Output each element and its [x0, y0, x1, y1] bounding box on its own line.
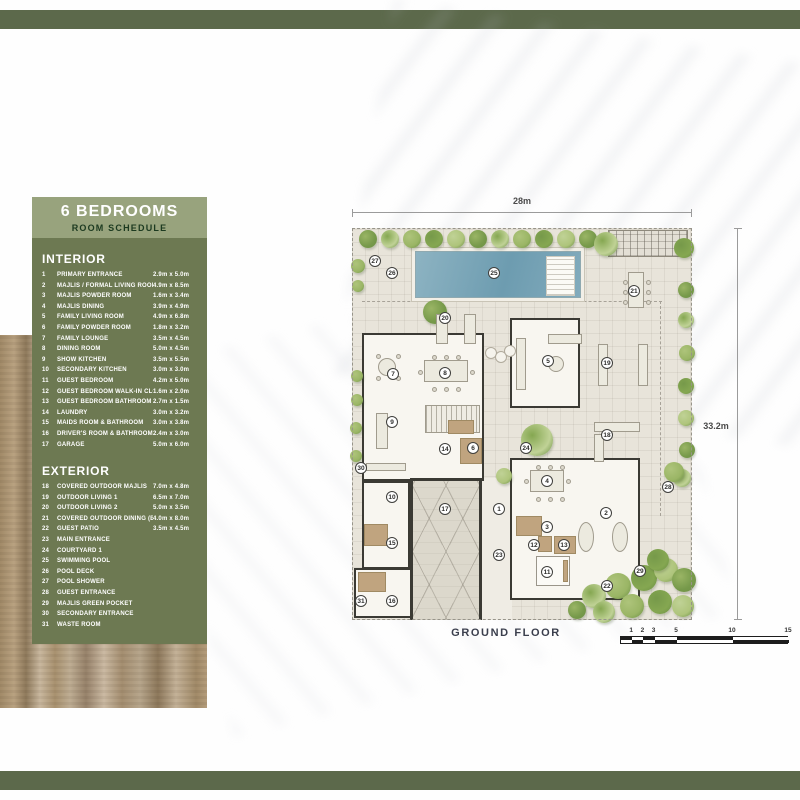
furniture: [366, 463, 406, 471]
room-label: OUTDOOR LIVING 1: [57, 493, 153, 504]
chair-dot: [376, 376, 381, 381]
room-label: GUEST BEDROOM WALK-IN CLOSET: [57, 387, 153, 398]
schedule-row: 3MAJLIS POWDER ROOM1.6m x 3.4m: [40, 291, 199, 302]
furniture: [578, 522, 594, 552]
schedule-row: 12GUEST BEDROOM WALK-IN CLOSET1.6m x 2.0…: [40, 387, 199, 398]
furniture: [563, 560, 568, 582]
room-marker-28: 28: [662, 481, 674, 493]
schedule-row: 21COVERED OUTDOOR DINING (BBQ)4.0m x 8.0…: [40, 514, 199, 525]
tree: [568, 601, 586, 619]
tree: [648, 590, 672, 614]
schedule-row: 27POOL SHOWER: [40, 577, 199, 588]
chair-dot: [396, 354, 401, 359]
room-number: 29: [40, 599, 57, 610]
room-number: 31: [40, 620, 57, 631]
tree: [620, 594, 644, 618]
furniture: [358, 572, 386, 592]
room-marker-24: 24: [520, 442, 532, 454]
furniture: [594, 422, 640, 432]
room-marker-8: 8: [439, 367, 451, 379]
room-dimensions: 4.2m x 5.0m: [153, 376, 199, 387]
room-number: 16: [40, 429, 57, 440]
schedule-row: 8DINING ROOM5.0m x 4.5m: [40, 344, 199, 355]
bottom-accent-bar: [0, 771, 800, 790]
room-number: 9: [40, 355, 57, 366]
tree: [513, 230, 531, 248]
room-dimensions: 3.5m x 4.5m: [153, 334, 199, 345]
schedule-row: 26POOL DECK: [40, 567, 199, 578]
room-marker-3: 3: [541, 521, 553, 533]
room-marker-22: 22: [601, 580, 613, 592]
furniture: [516, 516, 542, 536]
room-number: 11: [40, 376, 57, 387]
scale-tick: 2: [641, 627, 645, 634]
chair-dot: [623, 280, 628, 285]
room-label: MAJLIS DINING: [57, 302, 153, 313]
room-label: PRIMARY ENTRANCE: [57, 270, 153, 281]
brochure-page: { "sidebar": { "title": "6 BEDROOMS", "s…: [0, 0, 800, 800]
tree: [535, 230, 553, 248]
room-label: SWIMMING POOL: [57, 556, 153, 567]
top-accent-bar: [0, 10, 800, 29]
room-label: COURTYARD 1: [57, 546, 153, 557]
tree: [350, 450, 362, 462]
scale-tick-labels: 12351015: [620, 627, 788, 636]
room-label: WASTE ROOM: [57, 620, 153, 631]
room-marker-30: 30: [355, 462, 367, 474]
tree: [425, 230, 443, 248]
schedule-row: 31WASTE ROOM: [40, 620, 199, 631]
room-label: DINING ROOM: [57, 344, 153, 355]
tree: [672, 595, 694, 617]
chair-dot: [444, 387, 449, 392]
tree: [359, 230, 377, 248]
schedule-row: 25SWIMMING POOL: [40, 556, 199, 567]
room-dimensions: 6.5m x 7.0m: [153, 493, 199, 504]
room-dimensions: 3.5m x 5.5m: [153, 355, 199, 366]
schedule-row: 7FAMILY LOUNGE3.5m x 4.5m: [40, 334, 199, 345]
room-marker-4: 4: [541, 475, 553, 487]
room-marker-20: 20: [439, 312, 451, 324]
scale-segment: [655, 640, 677, 643]
furniture: [448, 420, 474, 434]
room-marker-6: 6: [467, 442, 479, 454]
room-label: FAMILY POWDER ROOM: [57, 323, 153, 334]
room-label: SHOW KITCHEN: [57, 355, 153, 366]
chair-dot: [646, 300, 651, 305]
room-label: GUEST BEDROOM BATHROOM: [57, 397, 153, 408]
tree: [491, 230, 509, 248]
tree: [674, 238, 694, 258]
ground-floor-plan: 1234567891011121314151617181920212223242…: [352, 228, 692, 620]
tree: [647, 549, 669, 571]
scale-segment: [677, 640, 733, 643]
tree: [351, 259, 365, 273]
room-number: 25: [40, 556, 57, 567]
room-marker-13: 13: [558, 539, 570, 551]
room-marker-16: 16: [386, 595, 398, 607]
chair-dot: [524, 479, 529, 484]
roof-line: [362, 301, 662, 302]
schedule-row: 14LAUNDRY3.0m x 3.2m: [40, 408, 199, 419]
scale-tick: 10: [728, 627, 735, 634]
room-number: 26: [40, 567, 57, 578]
chair-dot: [536, 465, 541, 470]
room-marker-23: 23: [493, 549, 505, 561]
room-label: LAUNDRY: [57, 408, 153, 419]
schedule-row: 18COVERED OUTDOOR MAJLIS7.0m x 4.8m: [40, 482, 199, 493]
chair-dot: [376, 354, 381, 359]
schedule-row: 22GUEST PATIO3.5m x 4.5m: [40, 524, 199, 535]
chair-dot: [646, 280, 651, 285]
tree: [593, 601, 615, 623]
room-number: 4: [40, 302, 57, 313]
room-number: 20: [40, 503, 57, 514]
schedule-row: 1PRIMARY ENTRANCE2.9m x 5.0m: [40, 270, 199, 281]
room-dimensions: 4.0m x 8.0m: [153, 514, 199, 525]
room-label: OUTDOOR LIVING 2: [57, 503, 153, 514]
room-dimensions: 5.0m x 3.5m: [153, 503, 199, 514]
furniture: [516, 338, 526, 390]
room-label: COVERED OUTDOOR MAJLIS: [57, 482, 153, 493]
room-marker-14: 14: [439, 443, 451, 455]
schedule-row: 5FAMILY LIVING ROOM4.9m x 6.8m: [40, 312, 199, 323]
chair-dot: [548, 465, 553, 470]
chair-dot: [536, 497, 541, 502]
plan-height-dimension: 33.2m: [697, 421, 735, 431]
chair-dot: [560, 497, 565, 502]
furniture: [638, 344, 648, 386]
schedule-row: 4MAJLIS DINING3.9m x 4.9m: [40, 302, 199, 313]
furniture: [464, 314, 476, 344]
schedule-row: 23MAIN ENTRANCE: [40, 535, 199, 546]
planter: [504, 345, 516, 357]
room-schedule-panel: 6 BEDROOMS ROOM SCHEDULE INTERIOR1PRIMAR…: [32, 197, 207, 644]
tree: [678, 378, 694, 394]
tree: [594, 232, 618, 256]
schedule-row: 17GARAGE5.0m x 6.0m: [40, 440, 199, 451]
width-dimension-line: [352, 212, 692, 213]
scale-tick: 1: [629, 627, 633, 634]
section-heading: INTERIOR: [42, 252, 199, 266]
room-label: GARAGE: [57, 440, 153, 451]
page-title: 6 BEDROOMS: [32, 203, 207, 221]
schedule-row: 20OUTDOOR LIVING 25.0m x 3.5m: [40, 503, 199, 514]
tree: [351, 370, 363, 382]
tree: [381, 230, 399, 248]
room-marker-7: 7: [387, 368, 399, 380]
room-label: FAMILY LOUNGE: [57, 334, 153, 345]
room-number: 27: [40, 577, 57, 588]
scale-segment: [733, 640, 789, 643]
schedule-row: 10SECONDARY KITCHEN3.0m x 3.0m: [40, 365, 199, 376]
floor-title: GROUND FLOOR: [420, 627, 592, 639]
room-number: 23: [40, 535, 57, 546]
tree: [678, 312, 694, 328]
room-label: GUEST PATIO: [57, 524, 153, 535]
room-dimensions: 3.0m x 3.8m: [153, 418, 199, 429]
room-number: 18: [40, 482, 57, 493]
room-marker-29: 29: [634, 565, 646, 577]
chair-dot: [432, 355, 437, 360]
room-number: 6: [40, 323, 57, 334]
room-label: MAJLIS POWDER ROOM: [57, 291, 153, 302]
room-number: 7: [40, 334, 57, 345]
room-dimensions: 3.5m x 4.5m: [153, 524, 199, 535]
room-number: 30: [40, 609, 57, 620]
schedule-row: 30SECONDARY ENTRANCE: [40, 609, 199, 620]
room-marker-11: 11: [541, 566, 553, 578]
chair-dot: [548, 497, 553, 502]
room-label: POOL DECK: [57, 567, 153, 578]
room-number: 3: [40, 291, 57, 302]
room-marker-17: 17: [439, 503, 451, 515]
schedule-row: 13GUEST BEDROOM BATHROOM2.7m x 1.5m: [40, 397, 199, 408]
tree: [557, 230, 575, 248]
scale-segment: [632, 640, 643, 643]
room-label: MAIN ENTRANCE: [57, 535, 153, 546]
tree: [496, 468, 512, 484]
room-dimensions: 2.9m x 5.0m: [153, 270, 199, 281]
schedule-row: 29MAJLIS GREEN POCKET: [40, 599, 199, 610]
room-label: MAJLIS GREEN POCKET: [57, 599, 153, 610]
room-label: POOL SHOWER: [57, 577, 153, 588]
tree: [664, 462, 684, 482]
room-number: 17: [40, 440, 57, 451]
room-marker-2: 2: [600, 507, 612, 519]
room-number: 21: [40, 514, 57, 525]
room-number: 10: [40, 365, 57, 376]
tree: [678, 410, 694, 426]
tree: [672, 568, 696, 592]
schedule-row: 11GUEST BEDROOM4.2m x 5.0m: [40, 376, 199, 387]
schedule-row: 2MAJLIS / FORMAL LIVING ROOM4.9m x 8.5m: [40, 281, 199, 292]
room-marker-10: 10: [386, 491, 398, 503]
room-number: 24: [40, 546, 57, 557]
room-marker-18: 18: [601, 429, 613, 441]
room-marker-26: 26: [386, 267, 398, 279]
chair-dot: [646, 290, 651, 295]
tree: [403, 230, 421, 248]
tree: [679, 442, 695, 458]
room-marker-25: 25: [488, 267, 500, 279]
schedule-row: 15MAIDS ROOM & BATHROOM3.0m x 3.8m: [40, 418, 199, 429]
room-marker-21: 21: [628, 285, 640, 297]
room-marker-12: 12: [528, 539, 540, 551]
room-number: 13: [40, 397, 57, 408]
tree: [350, 422, 362, 434]
room-dimensions: 3.9m x 4.9m: [153, 302, 199, 313]
room-dimensions: 1.6m x 3.4m: [153, 291, 199, 302]
scale-segment: [621, 640, 632, 643]
room-marker-9: 9: [386, 416, 398, 428]
scale-tick: 15: [784, 627, 791, 634]
roof-line: [660, 301, 661, 516]
room-dimensions: 3.0m x 3.0m: [153, 365, 199, 376]
scale-strip: [620, 636, 788, 644]
room-label: MAJLIS / FORMAL LIVING ROOM: [57, 281, 153, 292]
room-dimensions: 1.8m x 3.2m: [153, 323, 199, 334]
schedule-row: 6FAMILY POWDER ROOM1.8m x 3.2m: [40, 323, 199, 334]
room-number: 19: [40, 493, 57, 504]
room-label: COVERED OUTDOOR DINING (BBQ): [57, 514, 153, 525]
room-dimensions: 5.0m x 4.5m: [153, 344, 199, 355]
room-dimensions: 5.0m x 6.0m: [153, 440, 199, 451]
room-number: 1: [40, 270, 57, 281]
chair-dot: [623, 300, 628, 305]
furniture: [364, 524, 388, 546]
schedule-list: INTERIOR1PRIMARY ENTRANCE2.9m x 5.0m2MAJ…: [32, 238, 207, 644]
room-dimensions: 2.7m x 1.5m: [153, 397, 199, 408]
schedule-row: 28GUEST ENTRANCE: [40, 588, 199, 599]
chair-dot: [444, 355, 449, 360]
room-number: 12: [40, 387, 57, 398]
chair-dot: [432, 387, 437, 392]
tree: [447, 230, 465, 248]
chair-dot: [560, 465, 565, 470]
tree: [352, 280, 364, 292]
furniture: [538, 536, 552, 552]
room-dimensions: 4.9m x 8.5m: [153, 281, 199, 292]
room-number: 5: [40, 312, 57, 323]
room-dimensions: 3.0m x 3.2m: [153, 408, 199, 419]
room-dimensions: 1.6m x 2.0m: [153, 387, 199, 398]
room-number: 15: [40, 418, 57, 429]
schedule-row: 19OUTDOOR LIVING 16.5m x 7.0m: [40, 493, 199, 504]
room-marker-15: 15: [386, 537, 398, 549]
room-number: 22: [40, 524, 57, 535]
scale-bar: 12351015: [620, 627, 788, 644]
pool-loungers: [546, 256, 575, 296]
room-dimensions: 7.0m x 4.8m: [153, 482, 199, 493]
tree: [678, 282, 694, 298]
room-marker-5: 5: [542, 355, 554, 367]
room-label: GUEST BEDROOM: [57, 376, 153, 387]
room-marker-19: 19: [601, 357, 613, 369]
room-label: MAIDS ROOM & BATHROOM: [57, 418, 153, 429]
schedule-row: 24COURTYARD 1: [40, 546, 199, 557]
plan-width-dimension: 28m: [352, 196, 692, 206]
furniture: [548, 334, 582, 344]
room-label: SECONDARY KITCHEN: [57, 365, 153, 376]
tree: [679, 345, 695, 361]
room-number: 8: [40, 344, 57, 355]
room-marker-27: 27: [369, 255, 381, 267]
height-dimension-line: [737, 228, 738, 620]
furniture: [612, 522, 628, 552]
room-number: 14: [40, 408, 57, 419]
schedule-row: 9SHOW KITCHEN3.5m x 5.5m: [40, 355, 199, 366]
room-marker-31: 31: [355, 595, 367, 607]
room-label: FAMILY LIVING ROOM: [57, 312, 153, 323]
section-heading: EXTERIOR: [42, 464, 199, 478]
chair-dot: [566, 479, 571, 484]
chair-dot: [418, 370, 423, 375]
room-marker-1: 1: [493, 503, 505, 515]
room-label: GUEST ENTRANCE: [57, 588, 153, 599]
room-label: DRIVER'S ROOM & BATHROOM: [57, 429, 153, 440]
room-dimensions: 4.9m x 6.8m: [153, 312, 199, 323]
chair-dot: [456, 355, 461, 360]
schedule-header: 6 BEDROOMS ROOM SCHEDULE: [32, 197, 207, 238]
garage-driveway: [410, 478, 482, 620]
room-number: 28: [40, 588, 57, 599]
scale-tick: 5: [674, 627, 678, 634]
chair-dot: [470, 370, 475, 375]
scale-segment: [643, 640, 654, 643]
schedule-subtitle: ROOM SCHEDULE: [32, 223, 207, 233]
scale-tick: 3: [652, 627, 656, 634]
room-dimensions: 2.4m x 3.0m: [153, 429, 199, 440]
room-number: 2: [40, 281, 57, 292]
tree: [351, 394, 363, 406]
room-label: SECONDARY ENTRANCE: [57, 609, 153, 620]
chair-dot: [456, 387, 461, 392]
schedule-row: 16DRIVER'S ROOM & BATHROOM2.4m x 3.0m: [40, 429, 199, 440]
tree: [469, 230, 487, 248]
